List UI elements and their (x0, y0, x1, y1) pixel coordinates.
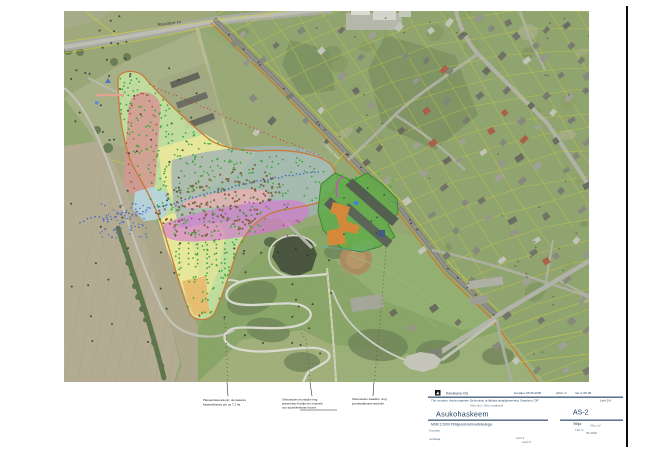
svg-text:töö nr 05-06: töö nr 05-06 (575, 391, 592, 395)
svg-text:Asukohaskeem: Asukohaskeem (436, 410, 489, 419)
svg-text:Leht 2/4: Leht 2/4 (600, 399, 611, 403)
svg-text:juurdepääsutee asukoht: juurdepääsutee asukoht (351, 402, 384, 406)
svg-text:Võru linn, Võru maakond: Võru linn, Võru maakond (470, 404, 503, 408)
svg-text:Mõõt 1:2000 Põhijoonis tehnov: Mõõt 1:2000 Põhijoonis tehnovõrkudega (431, 423, 492, 427)
svg-text:Staadium: DP: Staadium: DP (520, 399, 539, 403)
svg-text:kuupäev 05.06.2006: kuupäev 05.06.2006 (514, 391, 542, 395)
svg-text:katastriüksuse piir ca 7.2 ha: katastriüksuse piir ca 7.2 ha (203, 403, 241, 407)
svg-text:Juhataja: Juhataja (429, 437, 441, 441)
svg-text:Planeeritava ala piir, olemaso: Planeeritava ala piir, olemasolev (203, 398, 247, 402)
svg-text:Lehti 4: Lehti 4 (522, 440, 531, 444)
svg-text:Olemasolev staadion ning: Olemasolev staadion ning (352, 397, 387, 401)
svg-text:Võru LV: Võru LV (590, 424, 601, 428)
svg-text:AS-2: AS-2 (573, 410, 589, 417)
svg-text:Töö nr: Töö nr (575, 428, 584, 432)
svg-text:Tellija:: Tellija: (573, 422, 582, 426)
svg-text:Koostas: Koostas (429, 429, 440, 433)
svg-text:05-2006: 05-2006 (586, 431, 597, 435)
svg-text:Töö nimetus: Asula maantee 3a: Töö nimetus: Asula maantee 3a kinnistu j… (431, 399, 519, 403)
svg-text:uus spordikeskuse hoone: uus spordikeskuse hoone (282, 406, 316, 410)
svg-text:arhiiv nr: arhiiv nr (556, 391, 567, 395)
svg-text:Kavakava OÜ: Kavakava OÜ (446, 392, 469, 396)
